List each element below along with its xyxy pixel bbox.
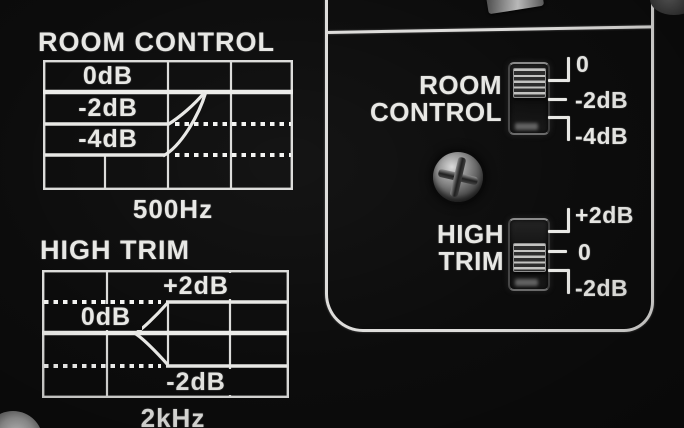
room-control-label-line2: CONTROL bbox=[330, 99, 502, 126]
room-control-switch-label: ROOM CONTROL bbox=[330, 72, 502, 126]
high-trim-label-line1: HIGH bbox=[360, 221, 504, 248]
room-control-row-minus4db: -4dB bbox=[64, 126, 152, 152]
high-trim-pos-plus2db: +2dB bbox=[575, 202, 634, 229]
high-trim-plus2db-label: +2dB bbox=[153, 273, 239, 299]
speaker-rear-panel: ROOM CONTROL 0dB -2dB -4dB 500Hz HIGH TR… bbox=[0, 0, 684, 428]
high-trim-switch-knob[interactable] bbox=[513, 243, 546, 272]
tick-line bbox=[548, 269, 569, 272]
tick-line bbox=[548, 98, 567, 101]
room-control-label-line1: ROOM bbox=[330, 72, 502, 99]
high-trim-diagram-title: HIGH TRIM bbox=[40, 235, 190, 266]
high-trim-0db-label: 0dB bbox=[70, 304, 142, 330]
room-control-frequency-label: 500Hz bbox=[128, 194, 218, 225]
high-trim-pos-0: 0 bbox=[578, 239, 591, 266]
room-control-row-0db: 0dB bbox=[72, 63, 144, 89]
room-control-row-minus2db: -2dB bbox=[64, 95, 152, 121]
tick-line bbox=[567, 116, 570, 141]
room-control-pos-minus4db: -4dB bbox=[575, 123, 628, 150]
shelf-transition-curve bbox=[135, 334, 168, 365]
room-control-switch-knob[interactable] bbox=[513, 68, 546, 98]
high-trim-switch[interactable] bbox=[508, 218, 550, 291]
high-trim-label-line2: TRIM bbox=[360, 248, 504, 275]
tick-line bbox=[567, 57, 570, 82]
partial-screw-bottom-left bbox=[0, 411, 43, 428]
room-control-switch[interactable] bbox=[508, 62, 550, 135]
high-trim-frequency-label: 2kHz bbox=[128, 403, 218, 428]
switch-reflection bbox=[515, 123, 538, 130]
high-trim-pos-minus2db: -2dB bbox=[575, 275, 628, 302]
tick-line bbox=[548, 79, 569, 82]
tick-line bbox=[548, 230, 569, 233]
room-control-pos-minus2db: -2dB bbox=[575, 87, 628, 114]
partial-knob-top-right bbox=[650, 0, 684, 15]
tick-line bbox=[567, 208, 570, 233]
tick-line bbox=[567, 269, 570, 294]
tick-line bbox=[548, 116, 569, 119]
room-control-diagram-title: ROOM CONTROL bbox=[38, 27, 275, 58]
switch-reflection bbox=[515, 279, 538, 286]
room-control-pos-0: 0 bbox=[576, 51, 589, 78]
phillips-screw bbox=[433, 152, 483, 202]
tick-line bbox=[548, 250, 567, 253]
high-trim-minus2db-label: -2dB bbox=[153, 369, 239, 395]
high-trim-switch-label: HIGH TRIM bbox=[360, 221, 504, 275]
